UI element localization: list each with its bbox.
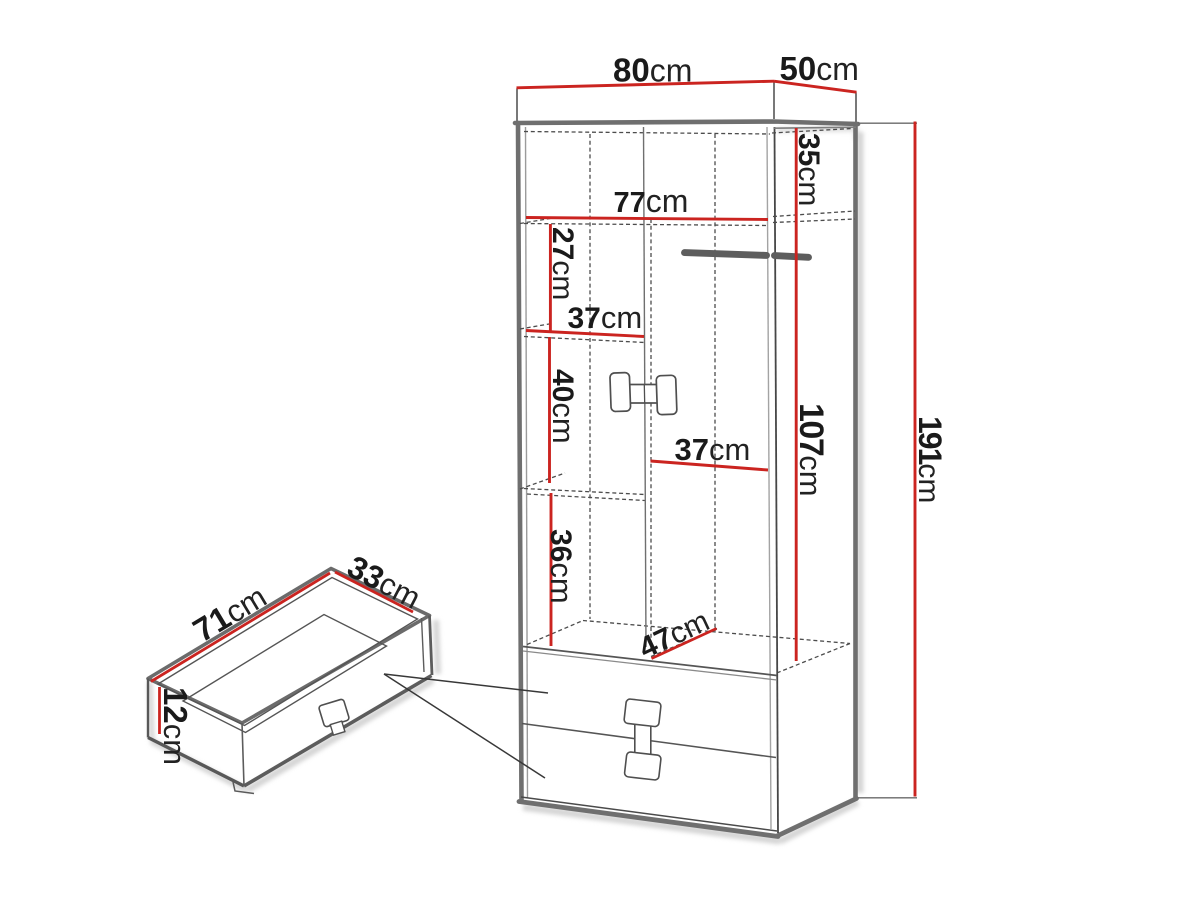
svg-text:107cm: 107cm: [792, 403, 830, 497]
svg-text:37cm: 37cm: [568, 300, 643, 335]
svg-text:36cm: 36cm: [544, 529, 579, 604]
svg-text:77cm: 77cm: [614, 183, 689, 219]
svg-text:191cm: 191cm: [912, 416, 948, 503]
svg-text:27cm: 27cm: [546, 227, 579, 300]
svg-text:35cm: 35cm: [792, 133, 825, 206]
svg-text:80cm: 80cm: [613, 52, 692, 89]
svg-text:50cm: 50cm: [780, 50, 859, 87]
svg-text:12cm: 12cm: [157, 687, 194, 765]
svg-text:37cm: 37cm: [675, 432, 751, 467]
svg-text:40cm: 40cm: [546, 369, 581, 444]
